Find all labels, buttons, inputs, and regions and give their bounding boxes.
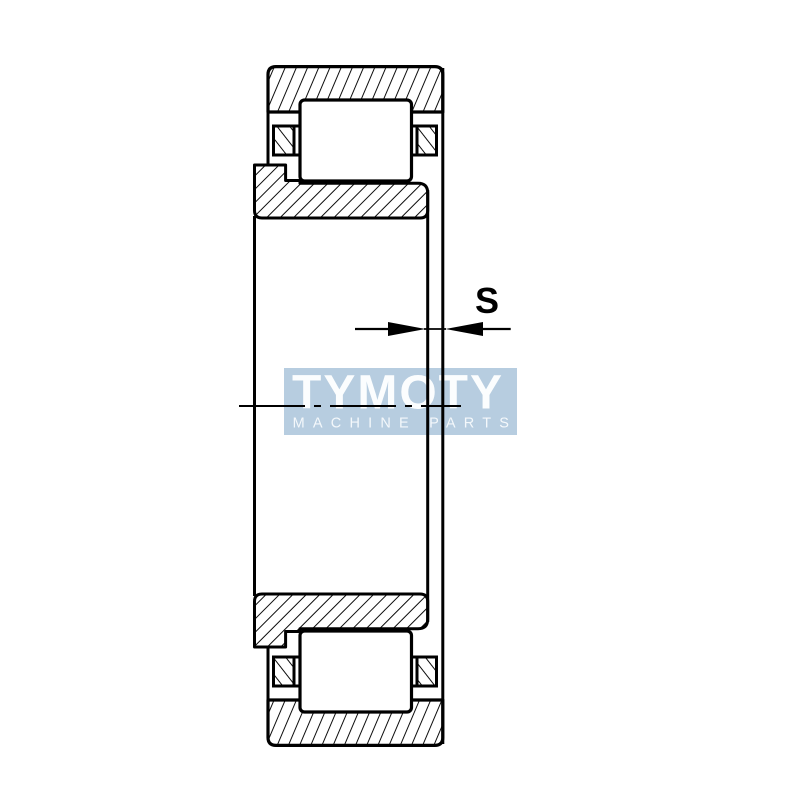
svg-text:S: S (475, 280, 499, 321)
svg-text:TYMOTY: TYMOTY (292, 367, 504, 420)
svg-text:MACHINE PARTS: MACHINE PARTS (293, 415, 518, 431)
